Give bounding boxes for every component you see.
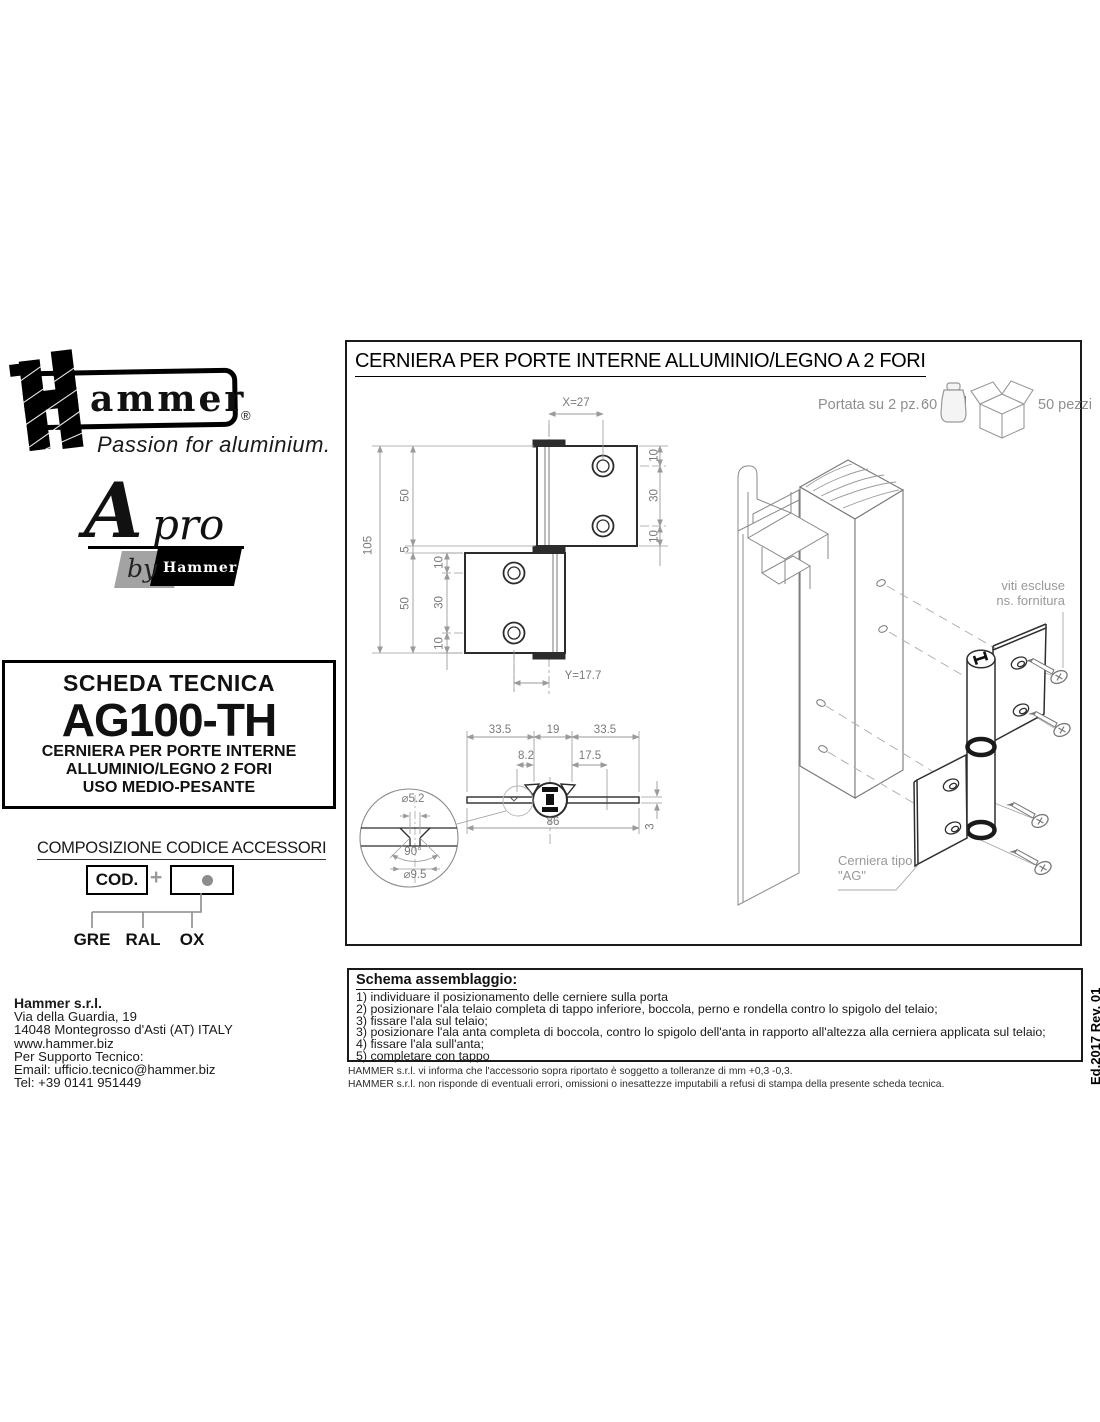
hinge-barrel	[967, 650, 995, 838]
dim-30-bl: 30	[434, 580, 447, 626]
dim-19: 19	[530, 724, 576, 737]
hinge-type-line2: "AG"	[838, 868, 912, 883]
datasheet-page: { "brand": { "name": "Hammer", "wordmark…	[0, 0, 1100, 1422]
iso-view	[738, 460, 1072, 905]
dim-335-left: 33.5	[477, 724, 523, 737]
company-info: Hammer s.r.l. Via della Guardia, 19 1404…	[14, 997, 233, 1089]
footnote-1: HAMMER s.r.l. vi informa che l'accessori…	[348, 1066, 793, 1077]
edition-revision: Ed.2017 Rev. 01	[1088, 935, 1100, 1085]
screws-note-line2: ns. fornitura	[983, 593, 1065, 608]
front-view	[372, 414, 668, 697]
dim-x27: X=27	[553, 397, 599, 410]
carton-icon	[971, 381, 1033, 438]
dim-175: 17.5	[567, 750, 613, 763]
hinge-type-note: Cerniera tipo "AG"	[838, 853, 912, 883]
company-phone: Tel: +39 0141 951449	[14, 1076, 233, 1089]
dim-dia52: ⌀5.2	[390, 793, 436, 806]
dim-y177: Y=17.7	[560, 670, 606, 683]
dim-105: 105	[363, 523, 376, 569]
option-ral: RAL	[121, 930, 165, 950]
dim-5-gap: 5	[400, 527, 413, 573]
accessories-tree-lines	[0, 0, 330, 960]
screws-note-line1: viti escluse	[983, 578, 1065, 593]
technical-drawing	[345, 340, 1083, 942]
dim-90deg: 90°	[390, 846, 436, 859]
option-ox: OX	[170, 930, 214, 950]
option-gre: GRE	[70, 930, 114, 950]
dim-335-right: 33.5	[582, 724, 628, 737]
dim-3: 3	[645, 804, 658, 850]
dim-82: 8.2	[503, 750, 549, 763]
assembly-title: Schema assemblaggio:	[356, 972, 517, 990]
dim-10-bl-bottom: 10	[434, 621, 447, 667]
screws-note: viti escluse ns. fornitura	[983, 578, 1065, 608]
assembly-step: 5) completare con tappo	[356, 1051, 1076, 1063]
dim-10-tl-bottom: 10	[649, 514, 662, 560]
weight-icon	[941, 383, 966, 422]
dim-30-tl: 30	[649, 473, 662, 519]
company-website: www.hammer.biz	[14, 1037, 233, 1050]
dim-50-top: 50	[400, 473, 413, 519]
footnote-2: HAMMER s.r.l. non risponde di eventuali …	[348, 1079, 944, 1090]
company-address-2: 14048 Montegrosso d'Asti (AT) ITALY	[14, 1023, 233, 1036]
hinge-type-line1: Cerniera tipo	[838, 853, 912, 868]
dim-dia95: ⌀9.5	[392, 869, 438, 882]
dim-86: 86	[530, 816, 576, 829]
assembly-steps: 1) individuare il posizionamento delle c…	[356, 992, 1076, 1063]
dim-50-bottom: 50	[400, 581, 413, 627]
